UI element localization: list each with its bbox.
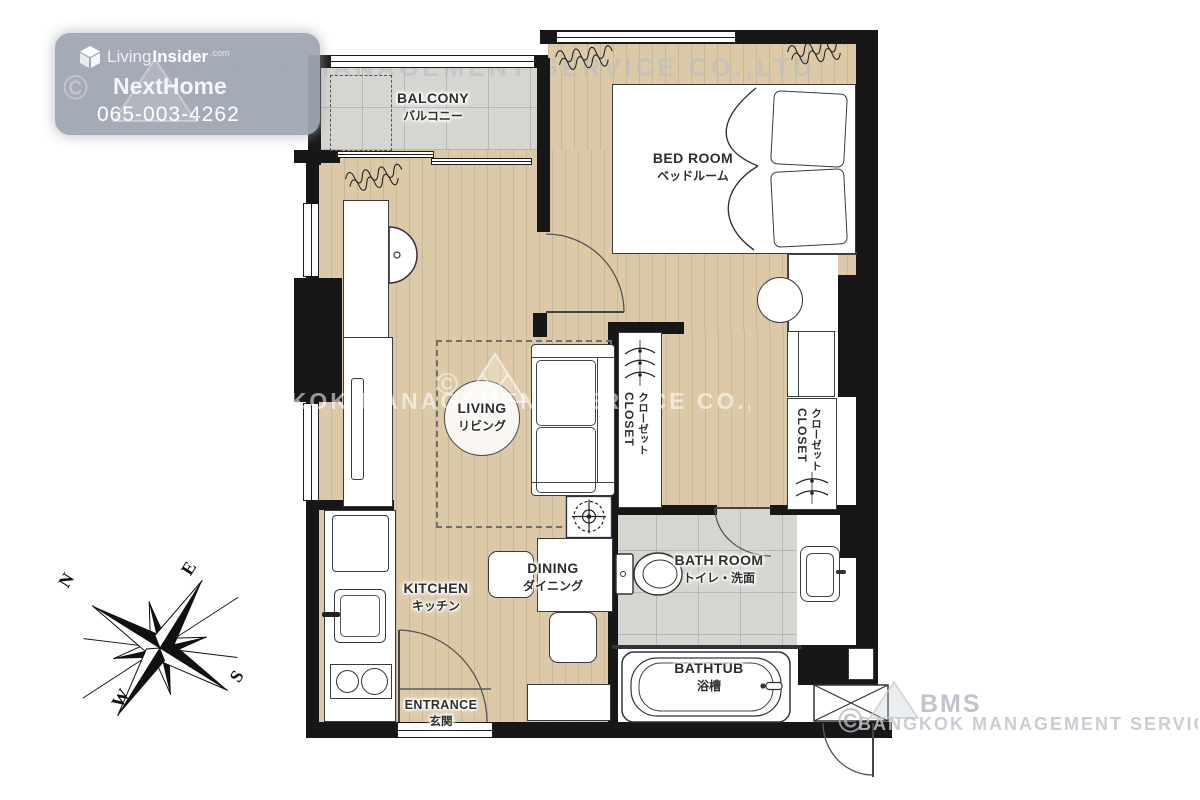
entrance-label: ENTRANCE 玄関	[381, 698, 501, 729]
bedroom-label-en: BED ROOM	[623, 150, 763, 166]
living-label-en: LIVING	[422, 400, 542, 416]
bedroom-label: BED ROOM ベッドルーム	[623, 150, 763, 184]
wall	[856, 30, 878, 738]
living-side-window-upper	[303, 203, 319, 277]
pillow	[770, 168, 848, 248]
closet-right-label-ja: クローゼット	[809, 408, 824, 488]
living-label-ja: リビング	[422, 417, 542, 434]
living-side-window-lower	[303, 403, 319, 501]
washbasin-round	[757, 277, 803, 323]
shoe-cabinet	[527, 684, 611, 721]
badge-agent-name: NextHome	[113, 73, 227, 100]
nook-cabinet	[787, 331, 835, 397]
badge-phone: 065-003-4262	[97, 103, 240, 127]
wall	[533, 313, 547, 337]
pillow	[770, 90, 848, 168]
refrigerator	[332, 515, 389, 572]
bathroom-door-swing	[713, 506, 773, 558]
bedroom-door-swing	[543, 228, 625, 316]
balcony-label-en: BALCONY	[363, 90, 503, 106]
compass-rose	[48, 562, 273, 737]
washbasin-faucet	[836, 570, 846, 574]
side-counter	[343, 200, 389, 338]
bathtub-label-en: BATHTUB	[639, 660, 779, 676]
ceiling-light-symbol	[565, 495, 613, 539]
bath-washbasin	[800, 546, 840, 602]
livinginsider-cube-icon	[79, 45, 101, 69]
stove-burner	[361, 668, 388, 695]
stove-burner	[336, 670, 359, 693]
bathtub-label: BATHTUB 浴槽	[639, 660, 779, 694]
stove	[330, 664, 392, 699]
bath-tub-divider	[612, 645, 802, 649]
watermark-copyright-mid: ©	[436, 368, 458, 402]
living-label: LIVING リビング	[422, 400, 542, 434]
washbasin-inner	[806, 553, 834, 597]
bathroom-label-ja: トイレ・洗面	[649, 569, 789, 586]
bedroom-label-ja: ベッドルーム	[623, 167, 763, 184]
balcony-top-window	[330, 55, 535, 68]
balcony-sliding-door-panel-1	[337, 151, 434, 158]
wall-pillar	[294, 278, 342, 402]
bathroom-label-en: BATH ROOM	[649, 552, 789, 568]
bathroom-label: BATH ROOM トイレ・洗面	[649, 552, 789, 586]
watermark-logo-ghost	[460, 350, 530, 406]
badge-brand-row: LivingInsider .com	[79, 45, 230, 69]
balcony-label-ja: バルコニー	[363, 107, 503, 124]
closet-right-label-en: CLOSET	[795, 408, 809, 488]
badge-brand-prefix: Living	[107, 47, 151, 67]
wall	[537, 58, 550, 232]
closet-right-label: CLOSET クローゼット	[795, 408, 824, 488]
kitchen-label-ja: キッチン	[366, 597, 506, 614]
balcony-label: BALCONY バルコニー	[363, 90, 503, 124]
sofa	[531, 344, 615, 496]
agency-badge: © LivingInsider .com NextHome 065-003-42…	[55, 33, 320, 135]
closet-left-label-ja: クローゼット	[636, 392, 651, 504]
meter-box	[848, 648, 874, 680]
cabinet-inner-line	[798, 332, 799, 396]
sink-faucet	[322, 612, 340, 617]
wall	[840, 505, 856, 558]
badge-brand-suffix: Insider	[152, 47, 208, 67]
dining-label: DINING ダイニング	[483, 560, 623, 594]
entrance-label-en: ENTRANCE	[381, 698, 501, 712]
dining-chair	[549, 612, 597, 663]
hanger-symbols	[621, 338, 659, 388]
balcony-sliding-door-panel-2	[431, 158, 532, 165]
basin-half-round	[386, 224, 436, 286]
badge-brand-tld: .com	[210, 48, 230, 58]
dining-label-ja: ダイニング	[483, 577, 623, 594]
watermark-service-bottom: BANGKOK MANAGEMENT SERVICE CO.,LTD	[858, 714, 1198, 735]
closet-left-label-en: CLOSET	[622, 392, 636, 504]
wall	[838, 275, 858, 397]
entrance-label-ja: 玄関	[381, 713, 501, 729]
dining-label-en: DINING	[483, 560, 623, 576]
sofa-cushion	[536, 427, 596, 493]
bedroom-window	[556, 31, 736, 43]
floorplan-page: BANGKOK MANAGEMENT SERVICE CO.,LTD	[0, 0, 1200, 800]
bathtub-label-ja: 浴槽	[639, 677, 779, 694]
closet-left-label: CLOSET クローゼット	[622, 392, 651, 504]
sofa-back	[597, 357, 614, 483]
badge-copyright-ghost: ©	[63, 69, 88, 108]
